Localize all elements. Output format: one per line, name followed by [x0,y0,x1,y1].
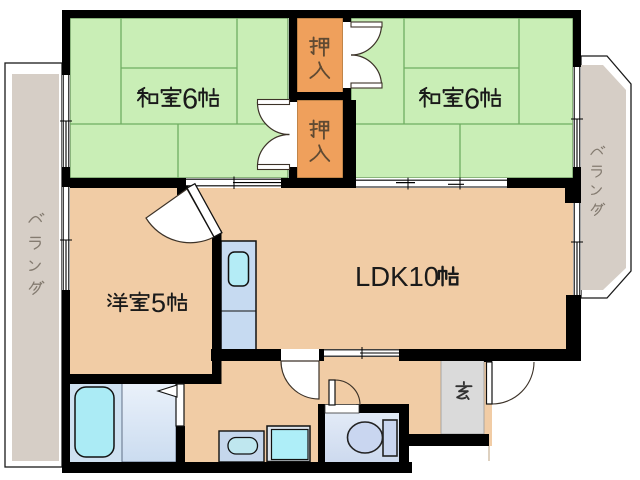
svg-text:5: 5 [151,288,166,318]
svg-text:6: 6 [464,84,480,116]
svg-text:LDK10: LDK10 [355,261,439,292]
svg-text:6: 6 [182,84,198,116]
